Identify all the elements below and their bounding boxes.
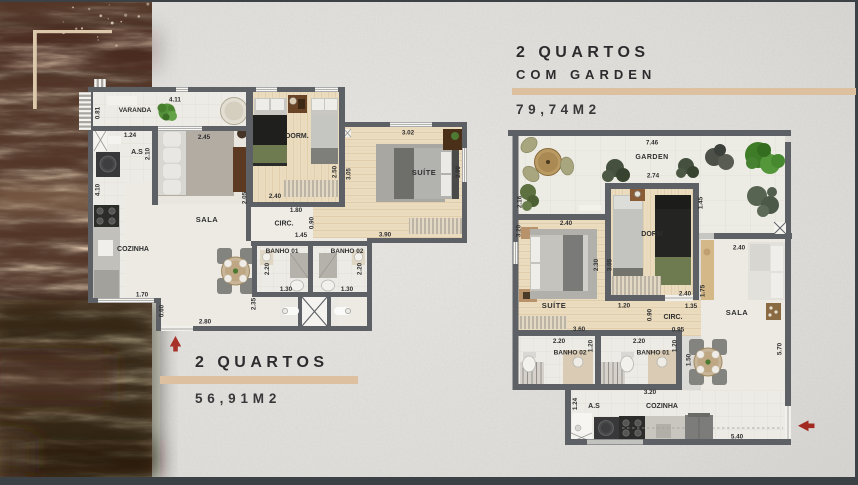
svg-text:1.30: 1.30 [280,286,293,293]
svg-text:2.20: 2.20 [357,262,364,275]
svg-text:1.80: 1.80 [290,207,303,214]
svg-text:4.11: 4.11 [169,97,181,104]
svg-text:2.99: 2.99 [456,166,462,178]
svg-text:1.45: 1.45 [295,232,308,239]
svg-text:1.20: 1.20 [672,339,679,352]
svg-text:1.20: 1.20 [588,339,595,352]
svg-text:CIRC.: CIRC. [663,314,682,321]
svg-text:0.60: 0.60 [159,304,166,317]
svg-text:2.40: 2.40 [560,220,573,227]
svg-text:SALA: SALA [196,215,219,224]
svg-text:3.05: 3.05 [347,168,353,180]
svg-text:0.81: 0.81 [95,106,102,119]
svg-text:2.80: 2.80 [199,319,212,326]
svg-text:1.24: 1.24 [124,132,137,139]
svg-text:VARANDA: VARANDA [119,107,152,114]
svg-text:2.30: 2.30 [593,258,600,271]
svg-text:BANHO 02: BANHO 02 [554,350,587,357]
svg-text:3.20: 3.20 [644,389,657,396]
svg-text:BANHO 01: BANHO 01 [637,350,670,357]
svg-text:3.20: 3.20 [516,224,523,237]
svg-text:0.95: 0.95 [672,327,685,334]
svg-text:1.75: 1.75 [700,284,707,297]
svg-text:SALA: SALA [726,308,749,317]
svg-text:3.05: 3.05 [607,258,614,271]
svg-text:BANHO 01: BANHO 01 [266,248,299,255]
svg-text:DORM.: DORM. [285,133,308,140]
svg-text:5.70: 5.70 [777,342,784,355]
svg-text:2.74: 2.74 [647,173,660,180]
svg-text:2.05: 2.05 [242,191,249,204]
svg-text:BANHO 02: BANHO 02 [331,248,364,255]
svg-text:5.40: 5.40 [731,434,744,441]
svg-text:3.90: 3.90 [379,232,392,239]
svg-text:SUÍTE: SUÍTE [412,168,437,177]
svg-text:DORM: DORM [641,231,663,238]
svg-text:1.70: 1.70 [136,292,149,299]
svg-text:COZINHA: COZINHA [117,246,149,253]
svg-text:COZINHA: COZINHA [646,403,678,410]
svg-text:2.20: 2.20 [264,262,271,275]
svg-text:SUÍTE: SUÍTE [542,301,567,310]
svg-text:A.S: A.S [588,403,600,410]
svg-text:2.40: 2.40 [269,193,282,200]
svg-text:4.10: 4.10 [95,183,102,196]
svg-text:7.46: 7.46 [646,140,659,147]
svg-text:2.20: 2.20 [553,338,566,345]
svg-text:2.10: 2.10 [145,147,152,160]
svg-text:1.35: 1.35 [685,303,698,310]
svg-text:1.50: 1.50 [686,353,693,366]
svg-text:2.50: 2.50 [332,165,339,178]
svg-text:3.02: 3.02 [402,130,415,137]
svg-text:2.45: 2.45 [198,134,211,141]
svg-text:1.24: 1.24 [572,397,579,410]
svg-text:0.90: 0.90 [309,216,316,229]
svg-text:0.90: 0.90 [647,308,654,321]
svg-text:2.40: 2.40 [733,245,746,252]
svg-text:A.S: A.S [131,149,143,156]
svg-text:2.16: 2.16 [517,195,524,208]
svg-text:1.45: 1.45 [698,196,705,209]
svg-text:2.20: 2.20 [633,338,646,345]
svg-text:GARDEN: GARDEN [635,154,668,161]
svg-text:2.40: 2.40 [679,291,692,298]
svg-text:1.30: 1.30 [341,286,354,293]
svg-text:3.60: 3.60 [573,326,586,333]
svg-text:2.35: 2.35 [251,297,258,310]
svg-text:CIRC.: CIRC. [274,221,293,228]
svg-text:1.20: 1.20 [618,303,631,310]
